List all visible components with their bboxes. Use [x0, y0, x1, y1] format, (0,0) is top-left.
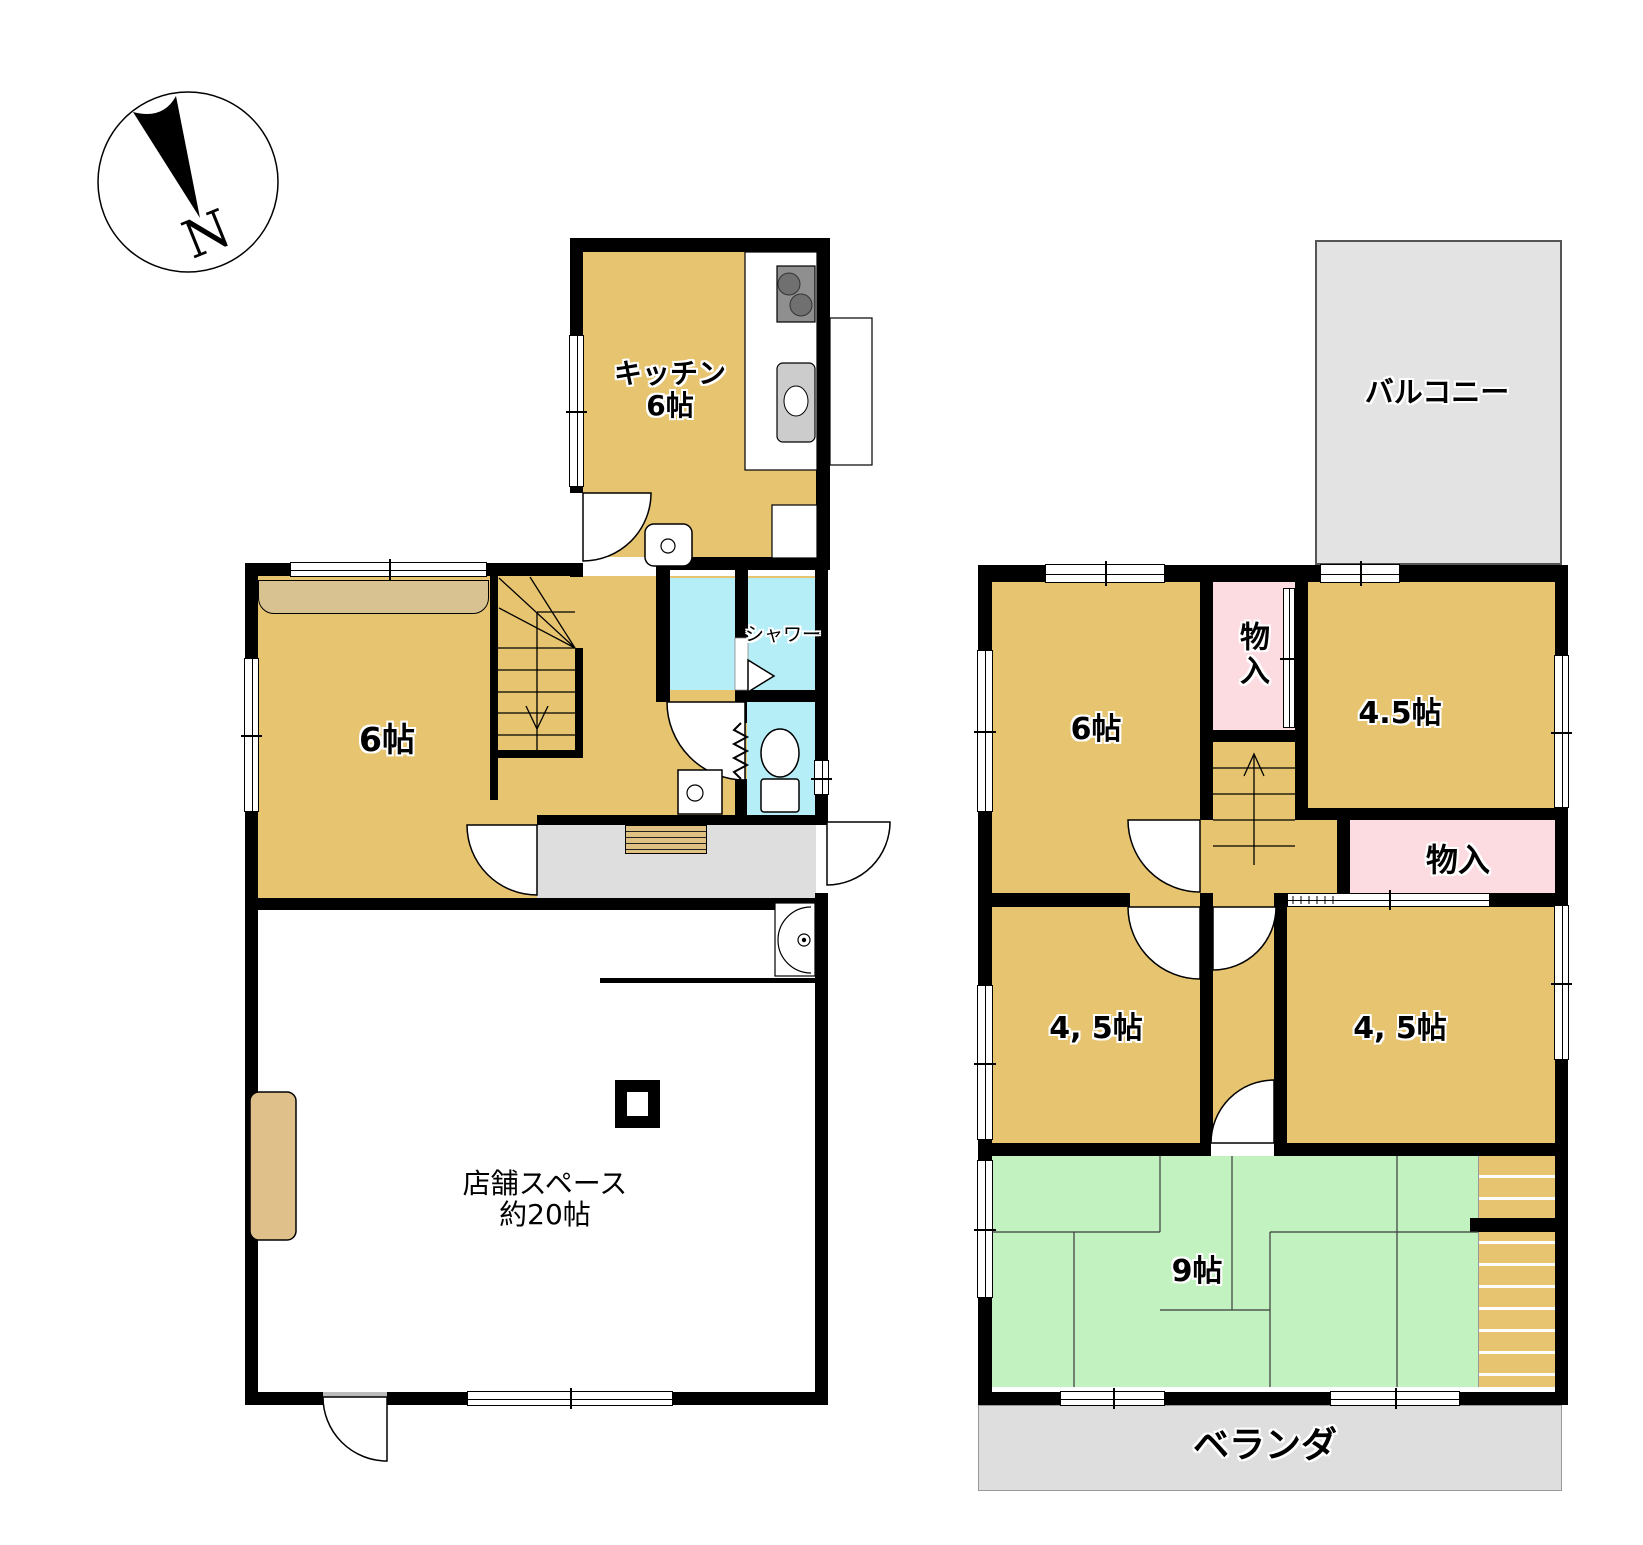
wall-segment: [575, 648, 583, 758]
window-room6-left: [244, 658, 259, 812]
wall-segment: [490, 758, 498, 800]
entrance-door-arc: [827, 822, 890, 885]
wall-segment: [1200, 582, 1213, 820]
wall-segment: [992, 1143, 1211, 1156]
kitchen-size-label: 6帖: [646, 384, 693, 424]
wall-segment: [245, 576, 258, 658]
shop-sink-icon: [775, 903, 815, 976]
shop-size-label: 約20帖: [499, 1193, 591, 1233]
bedroom-ne-size-label: 4.5帖: [1358, 688, 1441, 732]
wall-segment: [1308, 808, 1555, 820]
wall-segment: [1165, 565, 1320, 582]
wall-segment: [1200, 893, 1213, 1143]
bedroom-se-size-label: 4, 5帖: [1353, 1003, 1447, 1047]
wall-segment: [1165, 1392, 1330, 1405]
wall-segment: [387, 1392, 467, 1405]
wall-segment: [1274, 893, 1287, 907]
wall-segment: [1470, 1218, 1555, 1232]
wall-segment: [978, 812, 992, 985]
wall-segment: [1213, 730, 1295, 742]
shower-label: シャワー: [745, 620, 821, 647]
sliding-door-closet-lower: [1287, 893, 1490, 907]
window-2f-top-right: [1320, 564, 1400, 583]
window-2f-bottom-1: [1060, 1391, 1165, 1406]
tatami-size-label: 9帖: [1172, 1246, 1223, 1290]
room-toilet: [747, 702, 816, 815]
window-room6-top: [290, 562, 487, 577]
window-2f-right-2: [1554, 905, 1569, 1060]
wall-segment: [1555, 582, 1568, 655]
window-2f-top-left: [1045, 564, 1165, 583]
wall-segment: [735, 779, 747, 815]
wall-segment: [1490, 893, 1555, 907]
compass-north-label: N: [175, 199, 240, 272]
window-toilet-right: [814, 760, 829, 795]
shop-door-arc: [323, 1392, 387, 1461]
window-2f-bottom-2: [1330, 1391, 1460, 1406]
wall-segment: [978, 1392, 1060, 1405]
room6-size-label: 6帖: [359, 713, 415, 761]
closet-upper-label: 物入: [1229, 621, 1273, 689]
room-washroom: [670, 578, 735, 690]
wall-segment: [992, 893, 1130, 907]
wall-segment: [978, 582, 992, 650]
wall-segment: [1337, 820, 1350, 893]
wall-segment: [490, 750, 583, 758]
window-kitchen-left: [569, 335, 584, 487]
entrance-step: [625, 825, 707, 854]
kitchen-outside-unit: [830, 318, 872, 465]
wall-segment: [1555, 1060, 1568, 1405]
window-2f-left-2: [977, 985, 993, 1140]
sliding-door-closet-upper: [1283, 588, 1295, 728]
wall-segment: [978, 565, 1045, 582]
floorplan-canvas: N キッチン 6帖 6帖 シャワー 店舗スペース 約20帖 バルコニー 6帖 物…: [0, 0, 1643, 1545]
window-2f-right-1: [1554, 655, 1569, 808]
wall-segment: [570, 238, 830, 252]
tatami-room-area: [992, 1156, 1478, 1387]
wall-segment: [570, 252, 583, 335]
balcony-label: バルコニー: [1365, 369, 1509, 411]
wall-segment: [1460, 1392, 1568, 1405]
wall-segment: [570, 487, 583, 493]
window-shop-bottom: [467, 1391, 673, 1406]
closet-band-first-floor: [258, 580, 489, 614]
wall-segment: [1274, 1143, 1555, 1156]
wall-segment: [245, 563, 290, 576]
wall-segment: [816, 238, 830, 570]
wall-segment: [245, 1392, 323, 1405]
window-2f-left-1: [977, 650, 993, 812]
wall-segment: [815, 570, 828, 760]
wall-segment: [673, 1392, 827, 1405]
closet-lower-label: 物入: [1426, 835, 1490, 881]
wall-segment: [656, 570, 670, 702]
wall-segment: [815, 893, 828, 1405]
wall-segment: [735, 702, 747, 723]
wall-segment: [978, 1140, 992, 1160]
bedroom-nw-size-label: 6帖: [1071, 704, 1122, 748]
veranda-label: ベランダ: [1193, 1416, 1337, 1468]
wall-segment: [490, 576, 498, 758]
wall-segment: [1400, 565, 1568, 582]
window-2f-left-3: [977, 1160, 993, 1298]
room-kitchen: [583, 252, 817, 557]
wall-segment: [245, 898, 827, 910]
wall-segment: [487, 563, 583, 576]
bedroom-sw-size-label: 4, 5帖: [1049, 1003, 1143, 1047]
wall-segment: [978, 1298, 992, 1405]
wall-segment: [537, 815, 827, 825]
engawa-strip: [1478, 1156, 1556, 1387]
corridor-door-gap: [1211, 1143, 1274, 1156]
shop-counter-wall: [600, 978, 815, 983]
wall-segment: [1555, 808, 1568, 905]
wall-segment: [1295, 582, 1308, 820]
wall-segment: [656, 557, 816, 570]
wall-segment: [1274, 907, 1287, 1143]
shop-pillar-icon: [615, 1080, 660, 1128]
